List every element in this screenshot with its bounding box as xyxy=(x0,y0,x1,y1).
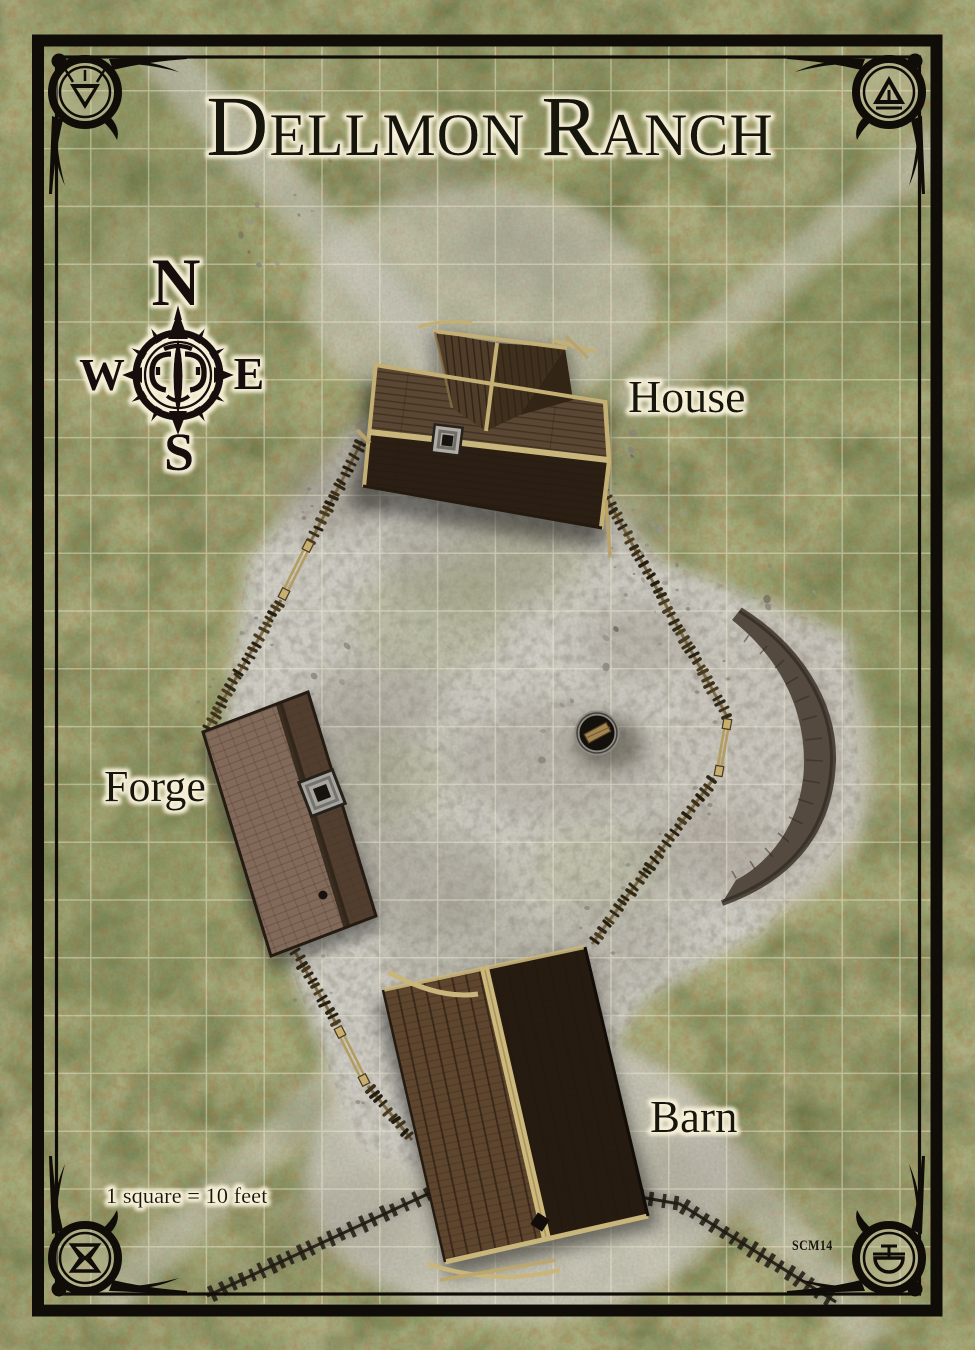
svg-text:1 square = 10 feet: 1 square = 10 feet xyxy=(106,1183,268,1208)
svg-text:S: S xyxy=(164,422,194,482)
svg-text:Forge: Forge xyxy=(104,762,206,811)
svg-text:E: E xyxy=(234,348,265,399)
svg-text:House: House xyxy=(628,371,746,422)
svg-text:SCM14: SCM14 xyxy=(792,1237,833,1254)
svg-text:W: W xyxy=(79,349,125,400)
svg-text:Barn: Barn xyxy=(650,1092,737,1142)
svg-text:N: N xyxy=(151,244,200,320)
